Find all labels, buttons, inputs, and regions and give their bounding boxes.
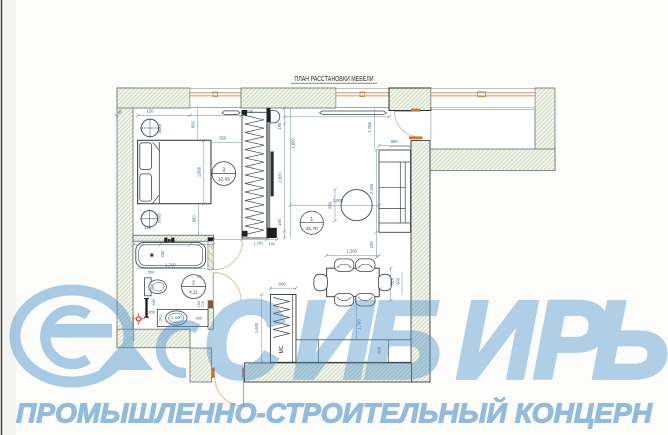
svg-text:235: 235 — [369, 241, 374, 249]
svg-text:850: 850 — [328, 201, 333, 209]
svg-text:465: 465 — [151, 298, 156, 305]
svg-text:ПЛАН РАССТАНОВКИ МЕБЕЛИ: ПЛАН РАССТАНОВКИ МЕБЕЛИ — [294, 75, 374, 83]
svg-text:120: 120 — [144, 225, 152, 230]
svg-text:550: 550 — [219, 135, 227, 140]
svg-text:1,700: 1,700 — [165, 263, 176, 268]
svg-text:31,70: 31,70 — [306, 226, 318, 231]
svg-text:190: 190 — [158, 315, 163, 322]
svg-text:850: 850 — [191, 215, 196, 223]
svg-text:1,500: 1,500 — [347, 249, 358, 254]
svg-text:4,11: 4,11 — [189, 290, 198, 295]
svg-text:1,800: 1,800 — [196, 166, 201, 177]
svg-text:12,43: 12,43 — [218, 177, 230, 182]
svg-text:195: 195 — [277, 122, 282, 130]
svg-text:3: 3 — [222, 168, 225, 174]
svg-text:СИБИРЬ: СИБИРЬ — [203, 279, 668, 402]
svg-text:1,065: 1,065 — [367, 121, 372, 132]
svg-text:2,300: 2,300 — [369, 183, 374, 194]
svg-text:2: 2 — [192, 281, 195, 287]
svg-text:195: 195 — [277, 218, 282, 226]
svg-text:120: 120 — [147, 109, 155, 114]
svg-text:850: 850 — [190, 120, 195, 128]
svg-text:(600): (600) — [157, 123, 162, 133]
svg-text:1,800: 1,800 — [290, 138, 295, 149]
svg-text:1: 1 — [310, 217, 313, 223]
svg-text:ПРОМЫШЛЕННО-СТРОИТЕЛЬНЫЙ КОНЦЕ: ПРОМЫШЛЕННО-СТРОИТЕЛЬНЫЙ КОНЦЕРН — [16, 397, 653, 429]
svg-text:192: 192 — [269, 241, 276, 246]
svg-text:550: 550 — [148, 269, 155, 274]
svg-text:365: 365 — [195, 315, 202, 320]
svg-text:(600): (600) — [157, 213, 162, 223]
svg-text:850: 850 — [391, 139, 399, 144]
svg-text:1,761: 1,761 — [254, 240, 264, 245]
svg-text:50: 50 — [197, 275, 201, 279]
svg-text:2,820: 2,820 — [277, 172, 282, 183]
svg-text:365: 365 — [149, 283, 154, 290]
svg-text:365: 365 — [148, 309, 155, 314]
svg-text:3,008: 3,008 — [333, 198, 344, 203]
svg-text:750: 750 — [160, 250, 165, 258]
svg-text:345: 345 — [246, 109, 254, 114]
svg-text:1,100: 1,100 — [171, 315, 182, 320]
